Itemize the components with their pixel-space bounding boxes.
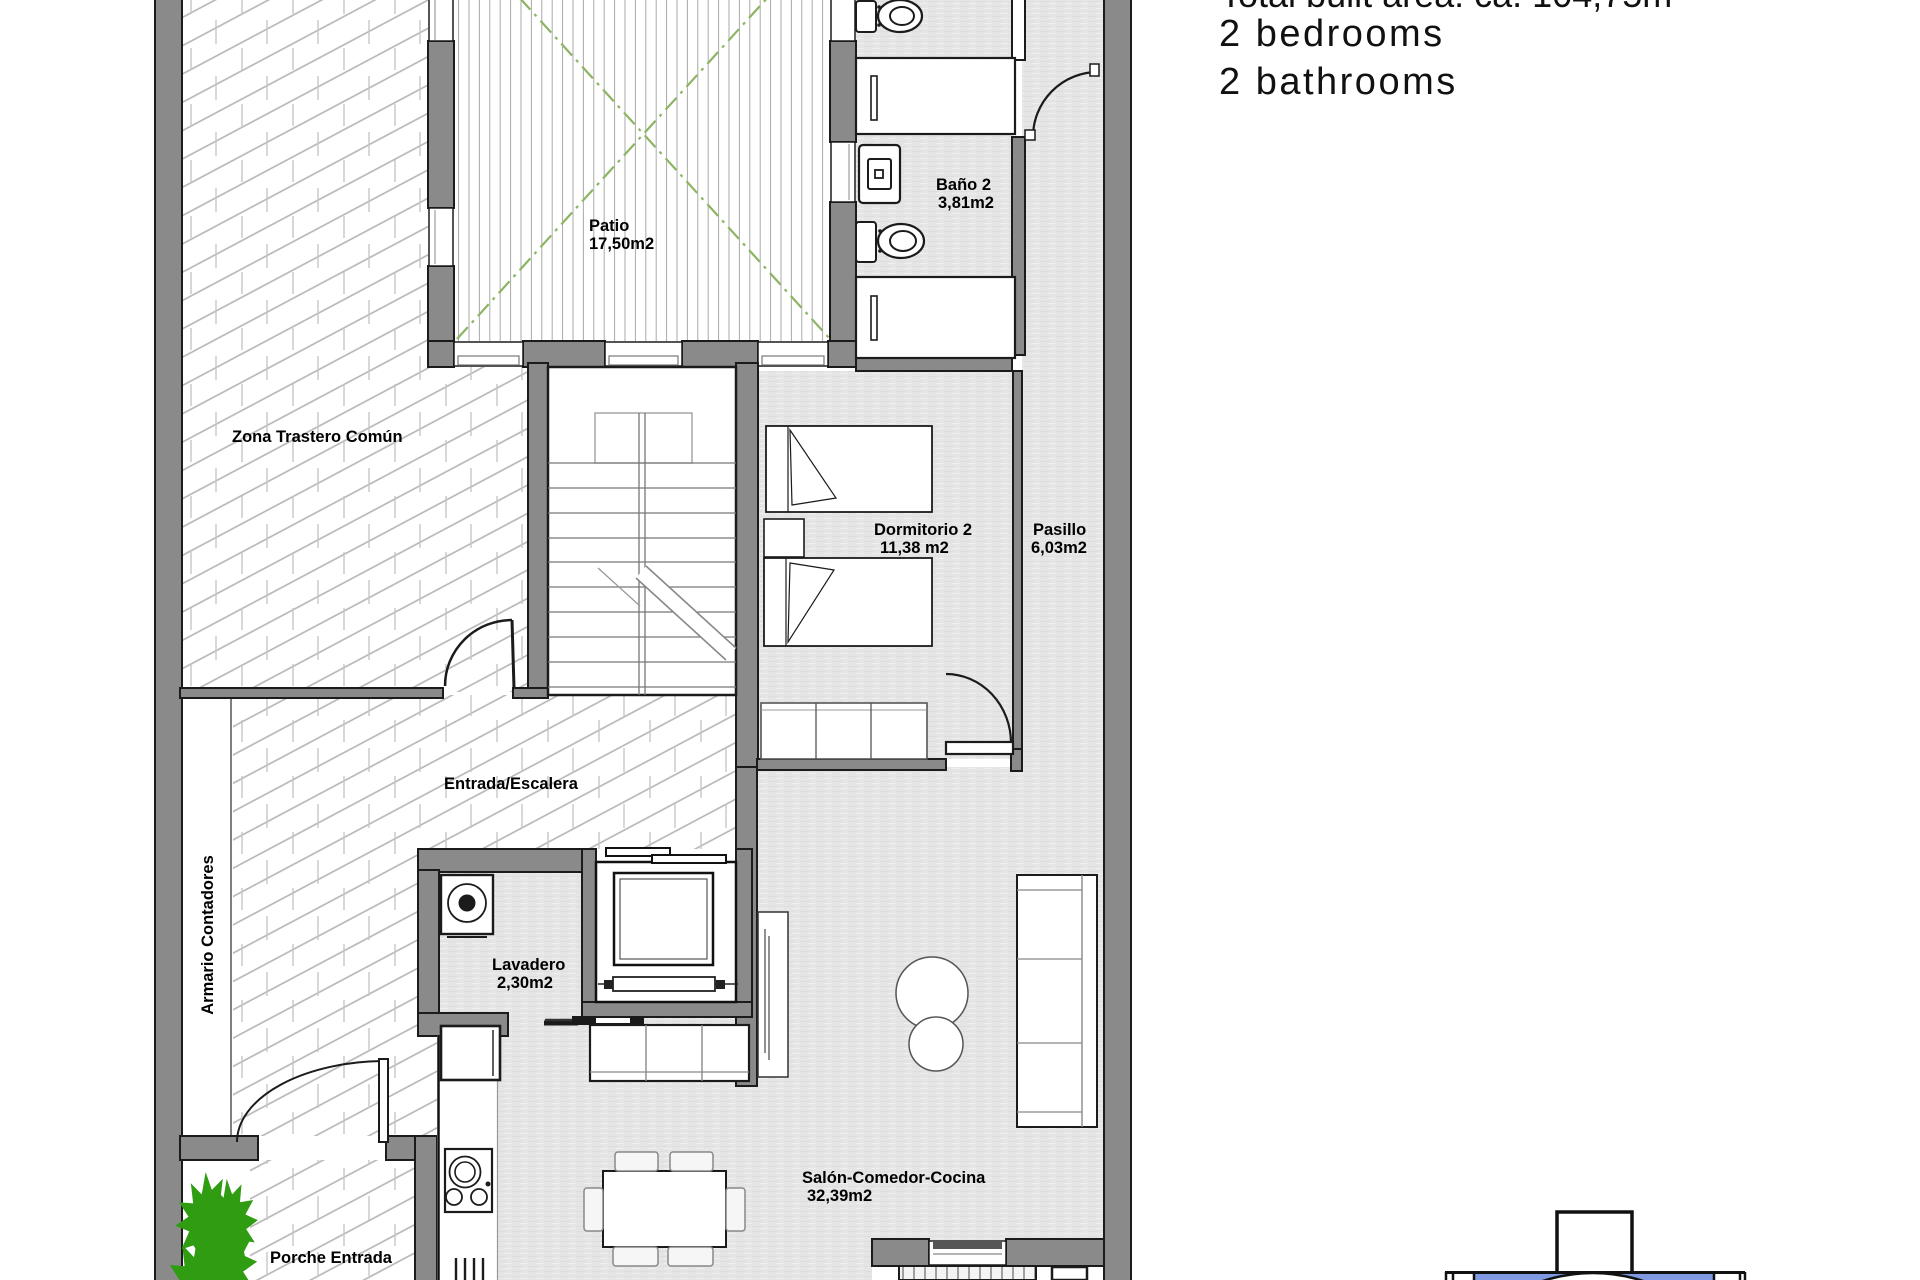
svg-text:Salón-Comedor-Cocina: Salón-Comedor-Cocina (802, 1169, 986, 1187)
svg-text:17,50m2: 17,50m2 (589, 235, 654, 253)
svg-text:2,30m2: 2,30m2 (497, 974, 553, 992)
svg-text:Patio: Patio (589, 217, 629, 235)
svg-text:2 bedrooms: 2 bedrooms (1219, 13, 1445, 55)
svg-text:Pasillo: Pasillo (1033, 521, 1086, 539)
svg-text:Baño 2: Baño 2 (936, 176, 991, 194)
svg-text:Zona Trastero Común: Zona Trastero Común (232, 428, 403, 446)
svg-text:6,03m2: 6,03m2 (1031, 539, 1087, 557)
svg-text:Lavadero: Lavadero (492, 956, 565, 974)
svg-text:Armario Contadores: Armario Contadores (199, 855, 217, 1015)
svg-text:32,39m2: 32,39m2 (807, 1187, 872, 1205)
svg-text:3,81m2: 3,81m2 (938, 194, 994, 212)
svg-text:Porche Entrada: Porche Entrada (270, 1249, 393, 1267)
svg-text:2 bathrooms: 2 bathrooms (1219, 61, 1458, 103)
svg-text:11,38 m2: 11,38 m2 (880, 539, 949, 557)
svg-text:Dormitorio 2: Dormitorio 2 (874, 521, 972, 539)
svg-text:Entrada/Escalera: Entrada/Escalera (444, 775, 579, 793)
